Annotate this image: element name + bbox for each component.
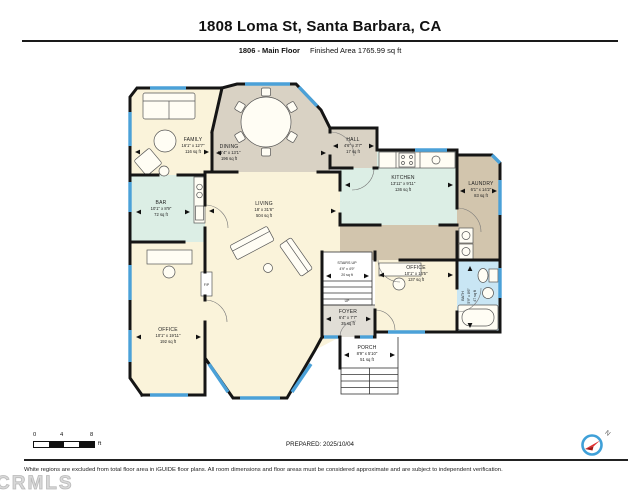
svg-text:137 sq ft: 137 sq ft <box>408 277 425 282</box>
svg-text:504 sq ft: 504 sq ft <box>256 213 273 218</box>
svg-text:6'1" x 14'2": 6'1" x 14'2" <box>471 187 492 192</box>
svg-text:16'4" x 13'1": 16'4" x 13'1" <box>218 150 241 155</box>
svg-text:BATH: BATH <box>461 291 465 301</box>
fireplace-label: F/P <box>204 283 210 287</box>
svg-text:10'1" x 8'9": 10'1" x 8'9" <box>151 206 172 211</box>
svg-text:13'11" x 9'11": 13'11" x 9'11" <box>391 181 416 186</box>
compass: N <box>580 432 614 458</box>
compass-icon <box>580 432 606 458</box>
svg-text:10'1" x 19'11": 10'1" x 19'11" <box>156 333 181 338</box>
svg-text:6'4" x 7'7": 6'4" x 7'7" <box>339 315 358 320</box>
prepared-date: PREPARED: 2025/10/04 <box>0 441 640 448</box>
scale-tick-8: 8 <box>90 432 93 438</box>
room-label-foyer: FOYER 6'4" x 7'7" 35 sq ft <box>339 309 358 326</box>
floorplan-page: 1808 Loma St, Santa Barbara, CA 1806 - M… <box>0 0 640 495</box>
svg-text:47 sq ft: 47 sq ft <box>473 290 477 302</box>
scale-tick-0: 0 <box>33 432 36 438</box>
svg-text:83 sq ft: 83 sq ft <box>474 193 489 198</box>
up-label: UP <box>345 299 350 303</box>
disclaimer-text: White regions are excluded from total fl… <box>24 467 624 473</box>
svg-text:10'1" x 14'5": 10'1" x 14'5" <box>405 271 428 276</box>
crmls-watermark: CRMLS <box>0 473 74 495</box>
svg-text:5'9" x 8'6": 5'9" x 8'6" <box>467 288 471 304</box>
room-label-living: LIVING 18' x 31'6" 504 sq ft <box>254 201 274 218</box>
svg-text:STAIRS UP: STAIRS UP <box>337 261 357 265</box>
svg-text:116 sq ft: 116 sq ft <box>185 149 202 154</box>
svg-text:8'9" x 5'10": 8'9" x 5'10" <box>357 351 378 356</box>
svg-text:20 sq ft: 20 sq ft <box>341 273 353 277</box>
svg-text:72 sq ft: 72 sq ft <box>154 212 169 217</box>
svg-text:51 sq ft: 51 sq ft <box>360 357 375 362</box>
svg-text:4'9" x 4'9": 4'9" x 4'9" <box>339 267 355 271</box>
svg-text:17 sq ft: 17 sq ft <box>346 149 361 154</box>
svg-text:136 sq ft: 136 sq ft <box>395 187 412 192</box>
floor-plan: FAMILY 16'1" x 12'7" 116 sq ft DINING 16… <box>0 0 640 495</box>
footer-divider <box>24 459 628 461</box>
svg-text:196 sq ft: 196 sq ft <box>221 156 238 161</box>
svg-text:16'1" x 12'7": 16'1" x 12'7" <box>182 143 205 148</box>
svg-text:35 sq ft: 35 sq ft <box>341 321 356 326</box>
svg-text:192 sq ft: 192 sq ft <box>160 339 177 344</box>
svg-text:18' x 31'6": 18' x 31'6" <box>254 207 274 212</box>
svg-text:4'6" x 3'7": 4'6" x 3'7" <box>344 143 363 148</box>
scale-tick-4: 4 <box>60 432 63 438</box>
